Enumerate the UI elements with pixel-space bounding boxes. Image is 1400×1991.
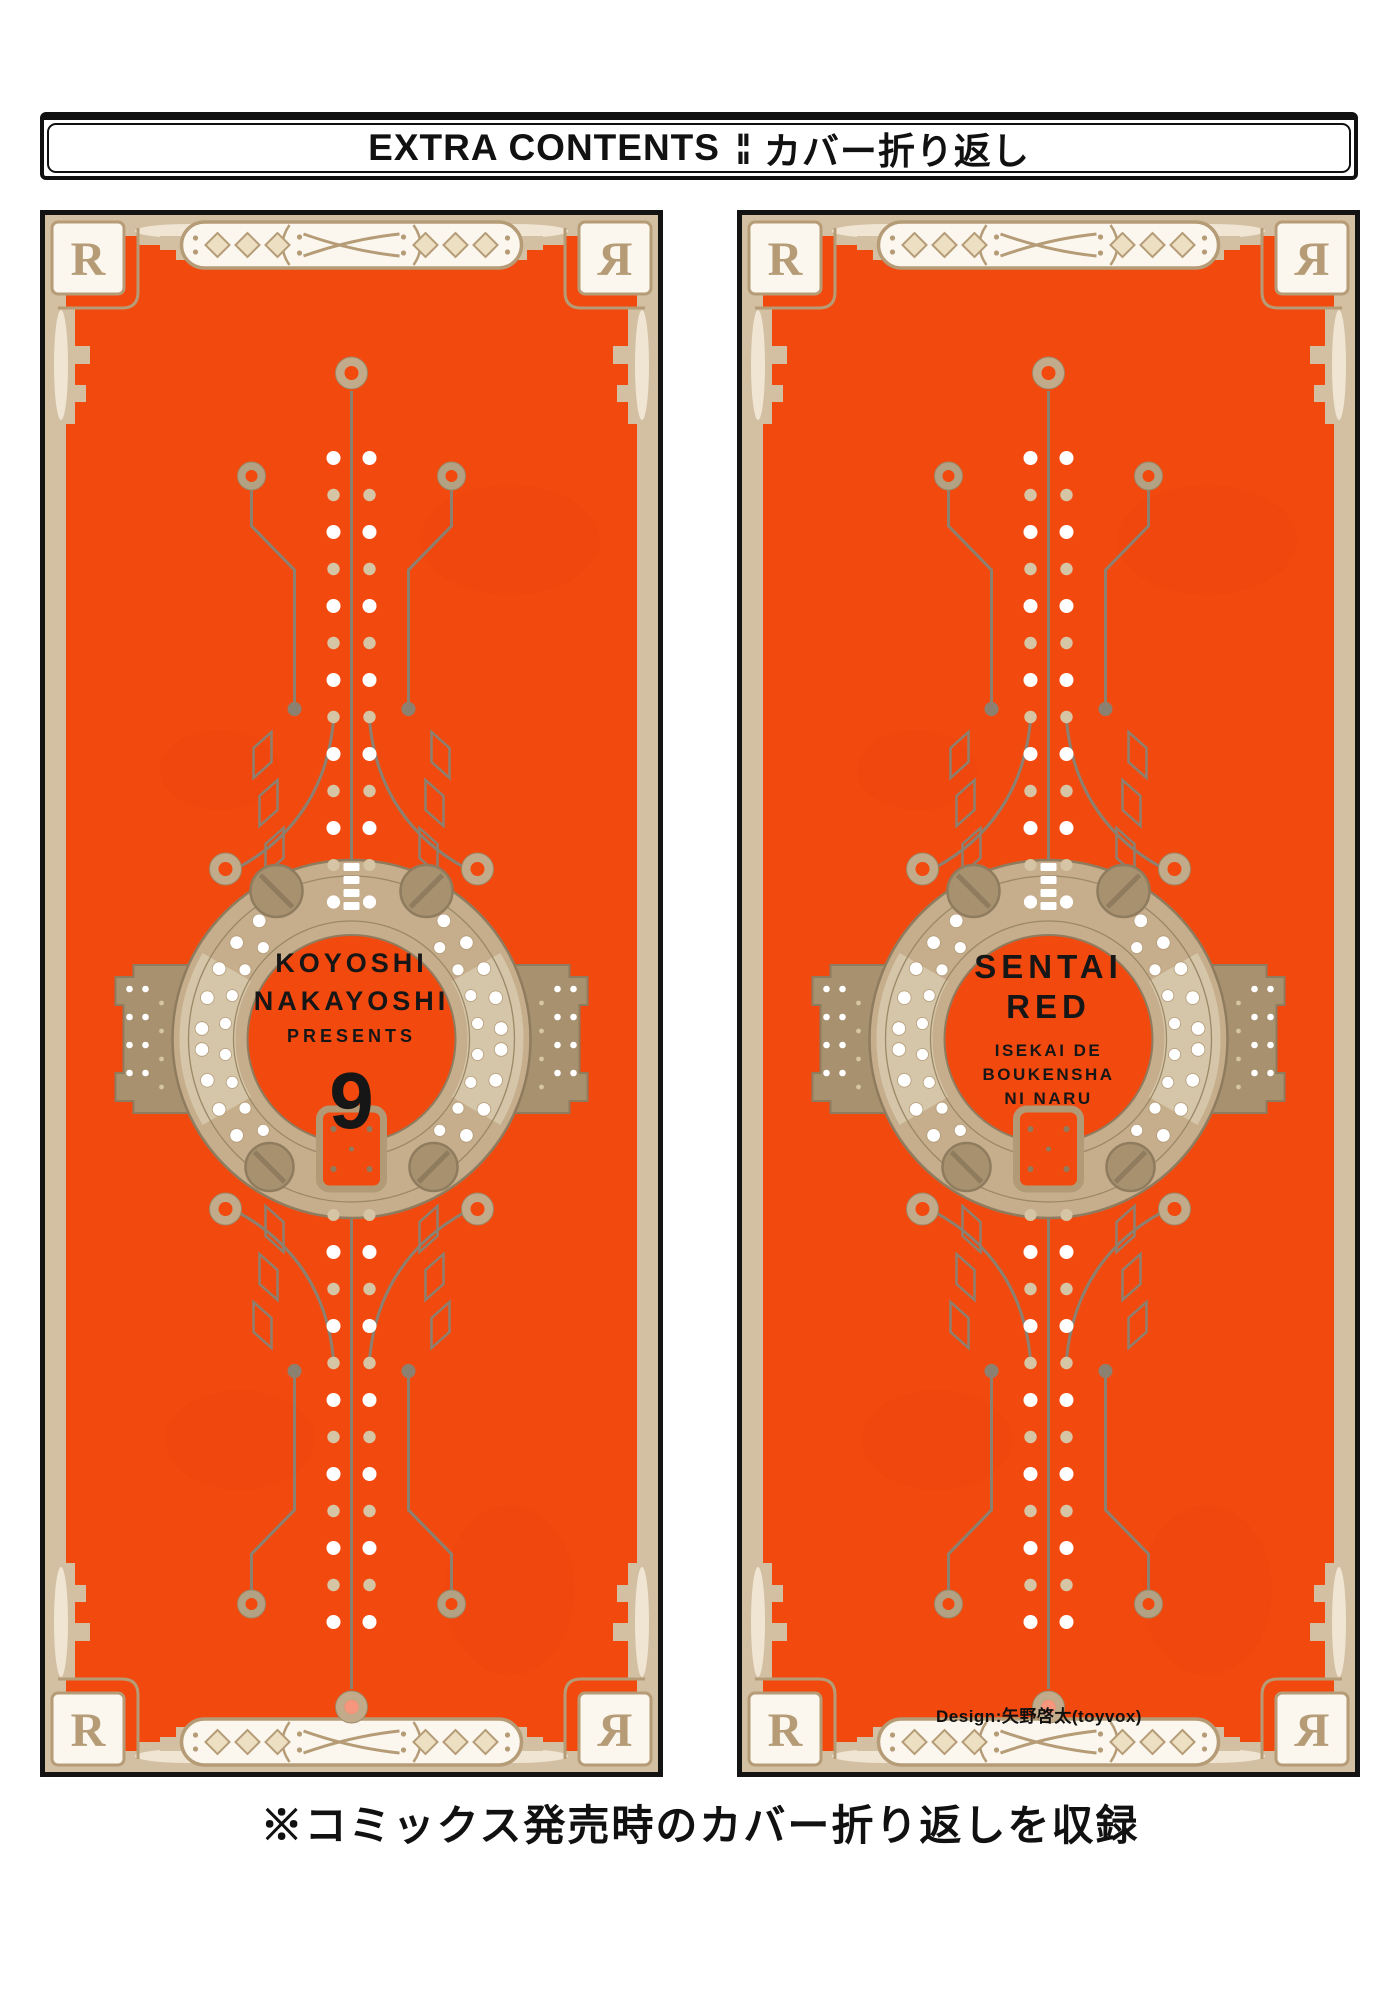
left-emblem-line1: KOYOSHI bbox=[275, 948, 428, 978]
right-emblem-line2: RED bbox=[1006, 988, 1091, 1025]
banner-title-ja: カバー折り返し bbox=[764, 121, 1030, 175]
right-emblem-sub1: ISEKAI DE bbox=[995, 1041, 1103, 1060]
left-emblem-line2: NAKAYOSHI bbox=[254, 986, 450, 1016]
right-flap-art: SENTAI RED ISEKAI DE BOUKENSHA NI NARU D… bbox=[737, 210, 1360, 1777]
extra-contents-banner: EXTRA CONTENTS ¦¦ カバー折り返し bbox=[40, 112, 1358, 180]
banner-separator: ¦¦ bbox=[736, 128, 748, 165]
left-emblem-line3: PRESENTS bbox=[287, 1026, 416, 1046]
left-flap-art: KOYOSHI NAKAYOSHI PRESENTS 9 bbox=[40, 210, 663, 1777]
banner-inner-frame: EXTRA CONTENTS ¦¦ カバー折り返し bbox=[47, 123, 1351, 173]
right-flap-panel: SENTAI RED ISEKAI DE BOUKENSHA NI NARU D… bbox=[737, 210, 1360, 1777]
banner-title-en: EXTRA CONTENTS bbox=[368, 127, 720, 169]
right-emblem-sub3: NI NARU bbox=[1004, 1089, 1092, 1108]
footer-note: ※コミックス発売時のカバー折り返しを収録 bbox=[0, 1792, 1400, 1853]
design-credit: Design:矢野啓太(toyvox) bbox=[936, 1706, 1142, 1726]
page: EXTRA CONTENTS ¦¦ カバー折り返し R bbox=[0, 0, 1400, 1991]
left-emblem-volume: 9 bbox=[329, 1056, 374, 1145]
right-emblem-sub2: BOUKENSHA bbox=[982, 1065, 1114, 1084]
left-flap-panel: KOYOSHI NAKAYOSHI PRESENTS 9 bbox=[40, 210, 663, 1777]
right-emblem-line1: SENTAI bbox=[974, 948, 1123, 985]
